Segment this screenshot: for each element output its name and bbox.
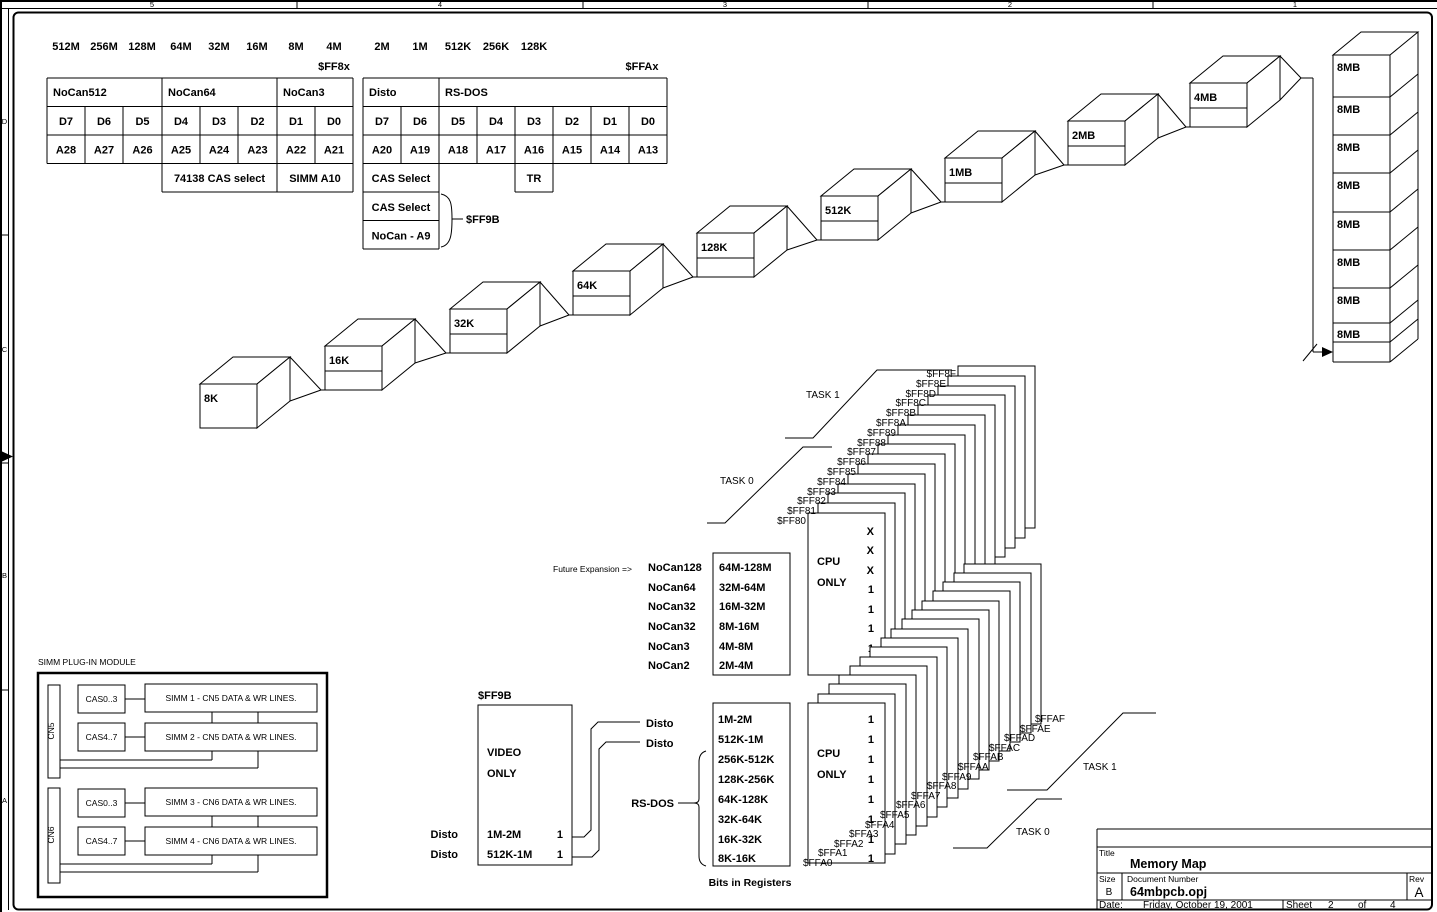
size-label: 1M	[412, 41, 427, 53]
ruler-left-c: C	[2, 345, 8, 354]
abit: A24	[209, 145, 230, 157]
reg-label: $FFA2	[834, 839, 864, 850]
task0-bracket	[953, 799, 1062, 848]
bit-value: 1	[868, 604, 874, 616]
dbit: D2	[250, 116, 264, 128]
disto-leader-label: Disto	[646, 718, 674, 730]
abit: A28	[56, 145, 76, 157]
reg-label: $FF81	[787, 506, 816, 517]
video-only-label: ONLY	[487, 768, 517, 780]
group-rsdos: RS-DOS	[445, 87, 488, 99]
reg-label: $FF8B	[886, 408, 916, 419]
task1-label: TASK 1	[806, 390, 840, 401]
bit-value: 1	[868, 814, 874, 826]
sheet-total: 4	[1390, 900, 1396, 911]
revision: A	[1414, 885, 1423, 900]
reg-label: $FFA7	[911, 791, 941, 802]
ruler-left-a: A	[2, 796, 7, 805]
simm-slot-label: SIMM 3 - CN6 DATA & WR LINES.	[166, 797, 297, 807]
reg-label: $FF8A	[876, 418, 906, 429]
abit: A20	[372, 145, 392, 157]
dbit: D7	[59, 116, 73, 128]
block-label-2mb: 2MB	[1072, 130, 1095, 142]
cas-select-1: CAS Select	[372, 173, 431, 185]
bank-cell: 8MB	[1337, 180, 1360, 192]
range-row: 16K-32K	[718, 834, 762, 846]
bank-cell: 8MB	[1337, 329, 1360, 341]
dbit: D0	[641, 116, 655, 128]
cpu-only-label: ONLY	[817, 769, 847, 781]
video-only-label: VIDEO	[487, 747, 522, 759]
memory-size-labels: 512M 256M 128M 64M 32M 16M 8M 4M 2M 1M 5…	[52, 41, 659, 73]
tr-cell: TR	[527, 173, 542, 185]
abit: A17	[486, 145, 506, 157]
task1-label: TASK 1	[1083, 762, 1117, 773]
size-label: 16M	[246, 41, 267, 53]
range-row: 512K-1M	[718, 734, 763, 746]
abit: A21	[324, 145, 344, 157]
rsdos-bracket	[694, 751, 706, 866]
dbit: D6	[413, 116, 427, 128]
cpu-only-label: ONLY	[817, 577, 847, 589]
reg-group-ffax-label: $FFAx	[625, 61, 659, 73]
exp-range: 32M-64M	[719, 582, 765, 594]
ruler-left-b: B	[2, 571, 7, 580]
left-edge-arrow-marker	[1, 451, 13, 462]
bank-cell: 8MB	[1337, 219, 1360, 231]
sheet-size: B	[1106, 887, 1113, 898]
exp-range: 64M-128M	[719, 562, 772, 574]
memory-block-cascade: 8K 16K 32K 64K 128K 512K 1MB 2MB	[200, 56, 1333, 428]
simm-plugin-module: SIMM PLUG-IN MODULE CN5 CAS0..3 CAS4..7 …	[38, 657, 327, 897]
bit-value: X	[867, 526, 875, 538]
exp-name: NoCan32	[648, 621, 696, 633]
reg-label: $FF84	[817, 477, 846, 488]
bit-value: 1	[868, 754, 874, 766]
abit: A25	[171, 145, 191, 157]
task0-label: TASK 0	[1016, 827, 1050, 838]
exp-name: NoCan3	[648, 641, 690, 653]
block-label-16k: 16K	[329, 355, 349, 367]
dbit: D5	[451, 116, 465, 128]
abit: A16	[524, 145, 544, 157]
ruler-top-3: 3	[723, 0, 727, 9]
bit-table-nocan: NoCan512 NoCan64 NoCan3 D7 D6 D5 D4 D3 D…	[47, 78, 353, 192]
bank-cell: 8MB	[1337, 295, 1360, 307]
group-nocan512: NoCan512	[53, 87, 107, 99]
simm-a10-label: SIMM A10	[289, 173, 341, 185]
abit: A15	[562, 145, 582, 157]
reg-label: $FFAA	[958, 762, 989, 773]
range-row: 64K-128K	[718, 794, 768, 806]
cn5-connector-label: CN5	[46, 722, 56, 739]
dbit: D3	[212, 116, 226, 128]
abit: A23	[247, 145, 267, 157]
reg-label: $FF85	[827, 467, 856, 478]
dbit: D4	[489, 116, 504, 128]
cas-select-74138-label: 74138 CAS select	[174, 173, 265, 185]
task0-label: TASK 0	[720, 476, 754, 487]
title-block: Title Memory Map Size B Document Number …	[1097, 829, 1432, 911]
rsdos-leader-label: RS-DOS	[631, 798, 674, 810]
ruler-top-1: 1	[1293, 0, 1297, 9]
dbit: D4	[174, 116, 189, 128]
range-row: 256K-512K	[718, 754, 774, 766]
exp-range: 8M-16M	[719, 621, 759, 633]
nocan-a9-cell: NoCan - A9	[372, 231, 431, 243]
reg-label: $FFAC	[989, 743, 1020, 754]
reg-label: $FF8F	[927, 369, 956, 380]
cpu-only-label: CPU	[817, 556, 840, 568]
group-nocan3: NoCan3	[283, 87, 325, 99]
reg-group-ff8x-label: $FF8x	[318, 61, 351, 73]
document-number: 64mbpcb.opj	[1130, 885, 1207, 899]
bit-value: 1	[868, 734, 874, 746]
reg-label: $FFAF	[1035, 714, 1065, 725]
abit: A19	[410, 145, 430, 157]
dbit: D6	[97, 116, 111, 128]
bit-value: X	[867, 545, 875, 557]
bit-value: X	[867, 565, 875, 577]
ff9b-video-box: $FF9B VIDEO ONLY Disto 1M-2M 1 Disto 512…	[431, 690, 641, 865]
ff9b-title: $FF9B	[478, 690, 512, 702]
dbit: D5	[135, 116, 149, 128]
exp-name: NoCan32	[648, 601, 696, 613]
exp-range: 16M-32M	[719, 601, 765, 613]
bit-value: 1	[868, 853, 874, 865]
reg-label: $FF8E	[916, 379, 946, 390]
future-expansion-label: Future Expansion =>	[553, 564, 632, 574]
dbit: D7	[375, 116, 389, 128]
ff9b-ref-label: $FF9B	[466, 214, 500, 226]
reg-label: $FFA0	[803, 858, 833, 869]
size-label: 8M	[288, 41, 303, 53]
schematic-sheet: 5 4 3 2 1 D C B A 512M 256M 128M 64M 32M…	[0, 0, 1437, 912]
abit: A22	[286, 145, 306, 157]
reg-label: $FF83	[807, 487, 836, 498]
range-table-lower: 1M-2M 512K-1M 256K-512K 128K-256K 64K-12…	[631, 703, 791, 889]
cas-range-label: CAS4..7	[86, 732, 118, 742]
reg-label: $FFA5	[880, 810, 910, 821]
bank-cell: 8MB	[1337, 142, 1360, 154]
size-label: 128K	[521, 41, 547, 53]
bit-value: 1	[868, 623, 874, 635]
ff9b-range: 1M-2M	[487, 829, 521, 841]
sheet-number: 2	[1328, 900, 1334, 911]
size-label: 32M	[208, 41, 229, 53]
size-label: 128M	[128, 41, 156, 53]
cas-range-label: CAS0..3	[86, 798, 118, 808]
group-disto: Disto	[369, 87, 397, 99]
arrow-into-8mb-stack	[1322, 347, 1333, 357]
ruler-top-5: 5	[150, 0, 154, 9]
abit: A26	[132, 145, 152, 157]
bits-in-registers-caption: Bits in Registers	[709, 877, 792, 889]
bit-value: 1	[557, 829, 563, 841]
size-label: 512K	[445, 41, 471, 53]
disto-leader-label: Disto	[646, 738, 674, 750]
simm-module-title: SIMM PLUG-IN MODULE	[38, 657, 136, 667]
cas-range-label: CAS4..7	[86, 836, 118, 846]
bit-value: 1	[557, 849, 563, 861]
bit-table-disto-rsdos: Disto RS-DOS D7 D6 D5 D4 D3 D2 D1 D0 A20…	[363, 78, 667, 249]
size-label: 512M	[52, 41, 80, 53]
block-label-64k: 64K	[577, 280, 597, 292]
size-field-label: Size	[1099, 874, 1116, 884]
dbit: D1	[289, 116, 303, 128]
bank-cell: 8MB	[1337, 257, 1360, 269]
bank-stack-8mb: 8MB 8MB 8MB 8MB 8MB 8MB 8MB 8MB	[1333, 32, 1418, 362]
dbit: D1	[603, 116, 617, 128]
drawing-date: Friday, October 19, 2001	[1143, 900, 1253, 911]
bit-value: 1	[868, 714, 874, 726]
exp-range: 4M-8M	[719, 641, 753, 653]
range-row: 1M-2M	[718, 714, 752, 726]
title-field-label: Title	[1099, 848, 1115, 858]
bit-value: 1	[868, 794, 874, 806]
exp-name: NoCan128	[648, 562, 702, 574]
reg-label: $FFAE	[1020, 724, 1051, 735]
size-label: 2M	[374, 41, 389, 53]
ff9b-leader-2	[572, 742, 640, 857]
simm-slot-label: SIMM 2 - CN5 DATA & WR LINES.	[166, 732, 297, 742]
reg-label: $FF86	[837, 457, 866, 468]
drawing-title: Memory Map	[1130, 857, 1207, 871]
sheet-field-label: Sheet	[1286, 900, 1312, 911]
sheet-of-label: of	[1358, 900, 1367, 911]
ff9b-range: 512K-1M	[487, 849, 532, 861]
group-nocan64: NoCan64	[168, 87, 217, 99]
block-label-8k: 8K	[204, 393, 218, 405]
range-row: 8K-16K	[718, 853, 756, 865]
future-expansion-table: Future Expansion => NoCan128 NoCan64 NoC…	[553, 553, 790, 675]
cas-select-2: CAS Select	[372, 202, 431, 214]
cn6-connector-label: CN6	[46, 826, 56, 843]
block-label-128k: 128K	[701, 242, 727, 254]
disto-row-label: Disto	[431, 849, 459, 861]
block-label-1mb: 1MB	[949, 167, 972, 179]
cas-range-label: CAS0..3	[86, 694, 118, 704]
abit: A14	[600, 145, 621, 157]
abit: A13	[638, 145, 658, 157]
reg-label: $FF80	[777, 516, 806, 527]
dbit: D2	[565, 116, 579, 128]
reg-label: $FFA9	[942, 772, 972, 783]
bit-value: 1	[868, 584, 874, 596]
ruler-top-4: 4	[438, 0, 442, 9]
exp-name: NoCan64	[648, 582, 697, 594]
dbit: D0	[327, 116, 341, 128]
reg-label: $FF88	[857, 438, 886, 449]
size-label: 256K	[483, 41, 509, 53]
ff9b-leader-1	[572, 722, 640, 837]
size-label: 4M	[326, 41, 341, 53]
docnum-field-label: Document Number	[1127, 874, 1199, 884]
range-row: 32K-64K	[718, 814, 762, 826]
rev-field-label: Rev	[1409, 874, 1425, 884]
bank-cell: 8MB	[1337, 62, 1360, 74]
abit: A27	[94, 145, 114, 157]
memory-map-drawing: 5 4 3 2 1 D C B A 512M 256M 128M 64M 32M…	[0, 0, 1437, 912]
block-label-32k: 32K	[454, 318, 474, 330]
dbit: D3	[527, 116, 541, 128]
block-label-4mb: 4MB	[1194, 92, 1217, 104]
disto-row-label: Disto	[431, 829, 459, 841]
reg-label: $FF89	[867, 428, 896, 439]
exp-name: NoCan2	[648, 660, 690, 672]
bit-value: 1	[868, 774, 874, 786]
block-label-512k: 512K	[825, 205, 851, 217]
size-label: 256M	[90, 41, 118, 53]
ruler-top-2: 2	[1008, 0, 1012, 9]
bank-cell: 8MB	[1337, 104, 1360, 116]
ruler-left-d: D	[2, 117, 8, 126]
date-field-label: Date:	[1099, 900, 1123, 911]
reg-label: $FF8D	[905, 389, 936, 400]
bit-value: 1	[868, 834, 874, 846]
brace	[441, 194, 452, 247]
cpu-only-label: CPU	[817, 748, 840, 760]
abit: A18	[448, 145, 468, 157]
range-row: 128K-256K	[718, 774, 774, 786]
simm-slot-label: SIMM 1 - CN5 DATA & WR LINES.	[166, 693, 297, 703]
exp-range: 2M-4M	[719, 660, 753, 672]
simm-slot-label: SIMM 4 - CN6 DATA & WR LINES.	[166, 836, 297, 846]
size-label: 64M	[170, 41, 191, 53]
